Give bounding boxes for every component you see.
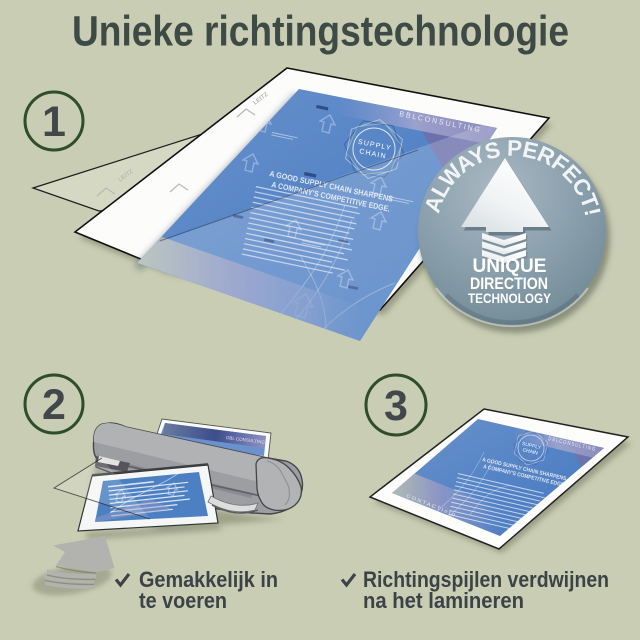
svg-text:Unieke richtingstechnologie: Unieke richtingstechnologie	[72, 8, 569, 56]
svg-text:te voeren: te voeren	[139, 588, 227, 613]
svg-text:UNIQUE: UNIQUE	[473, 256, 547, 277]
svg-text:3: 3	[384, 382, 408, 430]
svg-text:na het lamineren: na het lamineren	[363, 588, 524, 613]
svg-text:1: 1	[42, 98, 66, 146]
svg-text:TECHNOLOGY: TECHNOLOGY	[468, 290, 552, 306]
svg-text:2: 2	[42, 381, 66, 429]
